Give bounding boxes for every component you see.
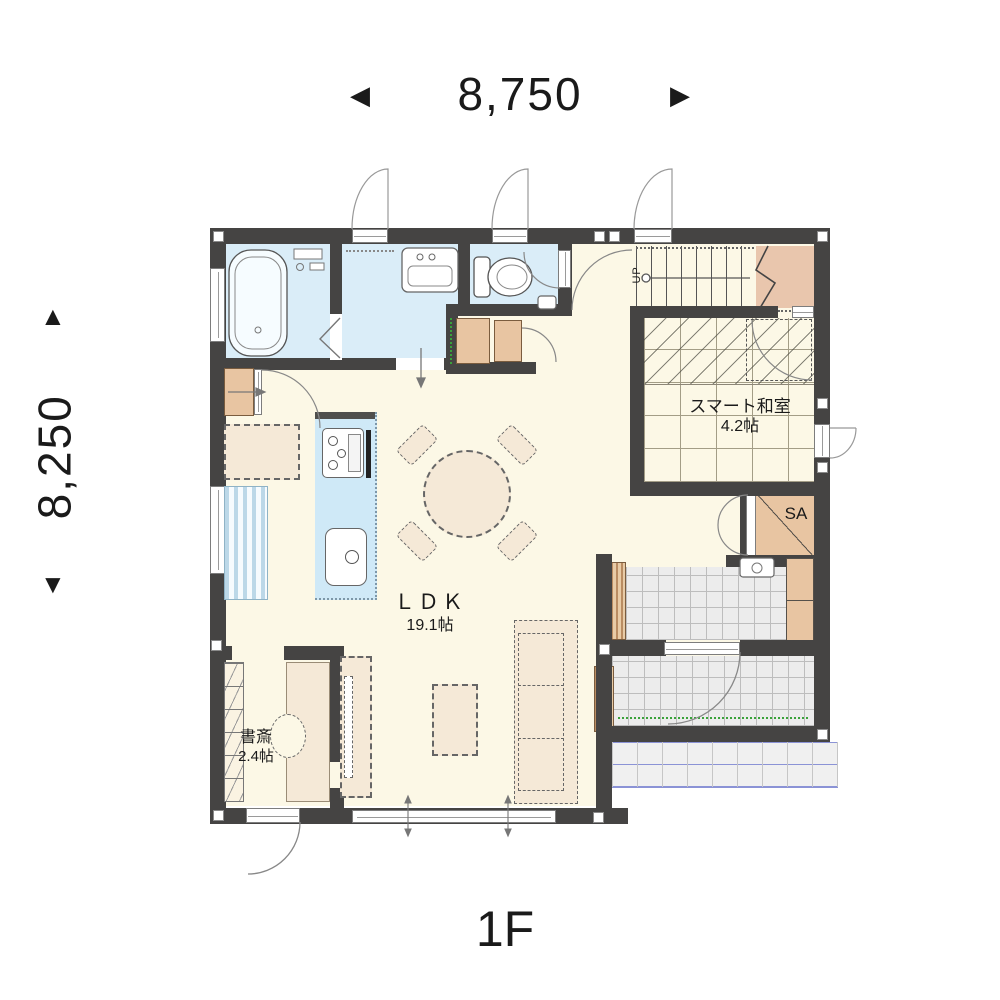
kitchen-counter-corner	[224, 424, 300, 480]
linen-cabinet	[456, 318, 490, 364]
washroom-dotted-edge	[346, 250, 394, 252]
room-ldk-label: ＬＤＫ 19.1帖	[370, 590, 490, 636]
door-toilet-leaf	[558, 250, 571, 288]
wall-sa-west-post	[740, 493, 746, 557]
casement-window-swing	[352, 169, 672, 229]
kitchen-faucet	[345, 550, 359, 564]
tv	[344, 676, 353, 778]
wall-washroom-south-a	[342, 358, 396, 370]
hall-cabinet	[494, 320, 522, 362]
wall-washitsu-south	[630, 482, 830, 496]
dimension-width-value: 8,750	[457, 66, 582, 124]
window-bathroom-west	[210, 268, 225, 342]
room-study-label: 書斎 2.4帖	[216, 728, 296, 767]
door-study-south-leaf	[246, 808, 300, 823]
step-edge-green-dotted	[618, 717, 808, 719]
kitchen-hood-edge	[315, 412, 375, 419]
wall-pillar	[211, 640, 222, 651]
arrow-left-icon: ◀	[350, 79, 370, 112]
room-washroom	[342, 244, 458, 358]
ldk-wall-cabinet	[224, 368, 254, 416]
stove-grill	[348, 434, 361, 472]
genkan-tile-floor	[626, 567, 786, 640]
wall-pillar	[817, 462, 828, 473]
bathroom-door-opening	[330, 314, 342, 360]
porch-tile	[612, 742, 838, 788]
dimension-height-value: 8,250	[26, 357, 84, 557]
stair-landing-door	[792, 306, 814, 318]
sa-double-door	[746, 493, 756, 557]
wall-pillar	[817, 231, 828, 242]
floor-plan-canvas: ◀ 8,750 ▶ ▲ 8,250 ▼ 1F UP スマート和室 4.2帖 SA	[0, 0, 1000, 1000]
ldk-cabinet-door	[254, 369, 262, 415]
linen-cabinet-green-dots	[450, 318, 452, 364]
entry-alcove-tile-floor	[612, 656, 814, 726]
wall-entrydoor-east	[740, 640, 816, 656]
sofa-seat	[518, 633, 564, 791]
stove-edge-strip	[366, 430, 371, 478]
wall-pillar	[609, 231, 620, 242]
wall-pillar	[594, 231, 605, 242]
window-ldk-south-sliding	[352, 810, 556, 823]
stove-burner	[328, 436, 338, 446]
dimension-width: ◀ 8,750 ▶	[350, 66, 690, 124]
washitsu-east-door-swing	[830, 428, 856, 458]
wall-pillar	[817, 398, 828, 409]
wall-pillar	[817, 729, 828, 740]
staircase-treads	[636, 246, 754, 308]
coffee-table	[432, 684, 478, 756]
room-bathroom	[224, 244, 330, 358]
window-top-3	[634, 229, 672, 243]
arrow-up-icon: ▲	[40, 300, 66, 333]
wall-entrance-south	[612, 726, 830, 742]
entrance-cabinet-divider	[786, 600, 814, 601]
wall-washitsu-north	[630, 306, 778, 318]
window-bench	[224, 486, 268, 600]
arrow-right-icon: ▶	[670, 79, 690, 112]
dining-table	[423, 450, 511, 538]
wall-pillar	[593, 812, 604, 823]
study-door-swing	[248, 822, 300, 874]
wall-pillar	[599, 644, 610, 655]
stair-up-label: UP	[631, 255, 645, 295]
room-washitsu-label: スマート和室 4.2帖	[660, 396, 820, 437]
arrow-down-icon: ▼	[40, 568, 66, 601]
door-washitsu-east-frame	[814, 424, 830, 458]
sofa	[514, 620, 578, 804]
sofa-seat-divider	[518, 685, 564, 686]
window-ldk-west	[210, 486, 225, 574]
washitsu-closet-dashed	[746, 319, 812, 381]
wall-pillar	[213, 810, 224, 821]
stove-burner	[337, 449, 346, 458]
stair-landing	[756, 246, 814, 308]
wall-ldk-east	[596, 554, 612, 824]
room-sa-label: SA	[778, 503, 814, 524]
door-entrance-leaf	[664, 642, 740, 655]
wall-entrydoor-west	[612, 640, 666, 656]
floor-label: 1F	[445, 898, 565, 961]
wall-toilet-south	[446, 304, 572, 316]
washroom-door-opening	[396, 358, 444, 370]
window-top-1	[352, 229, 388, 243]
wall-washitsu-west	[630, 306, 644, 496]
wall-pillar	[213, 231, 224, 242]
study-north-opening	[232, 646, 284, 660]
sofa-seat-divider	[518, 738, 564, 739]
stove-burner	[328, 460, 338, 470]
window-top-2	[492, 229, 528, 243]
